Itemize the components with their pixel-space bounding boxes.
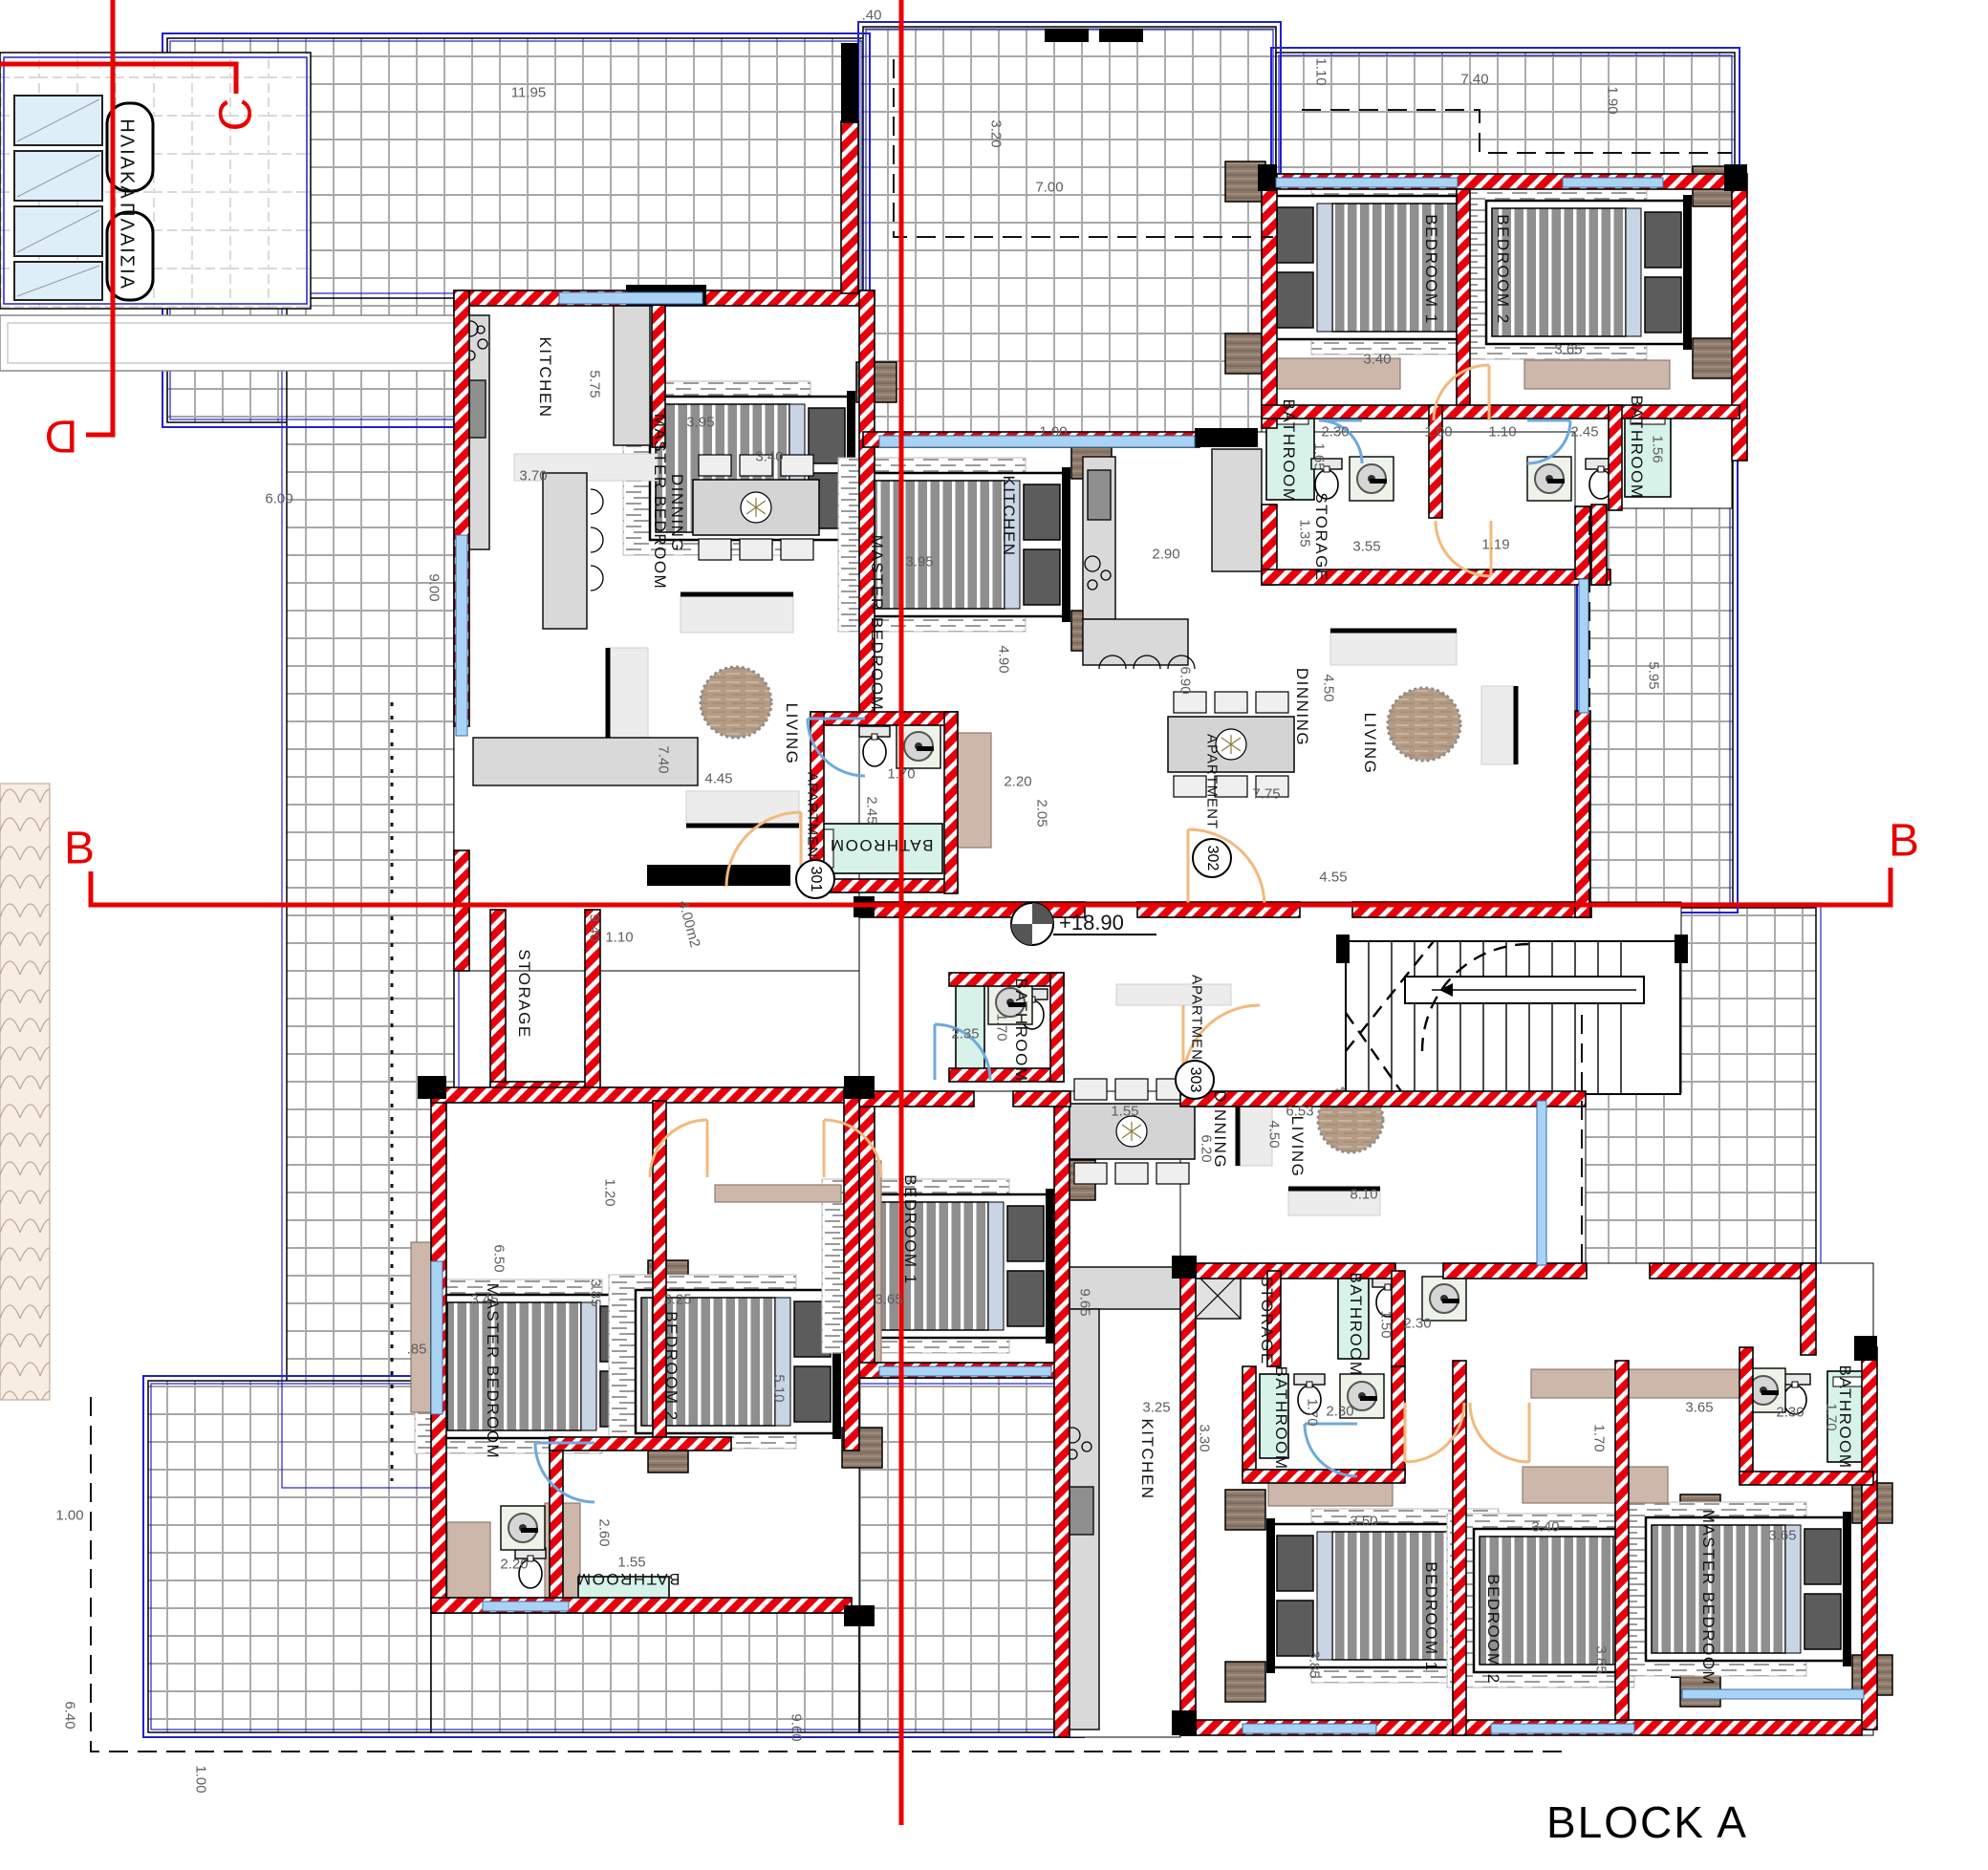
floor-plan: BLOCK A +18.90 ΗΛΙΑΚΑ ΠΛΑΙΣΙΑ KITCHENDIN…	[0, 0, 1988, 1870]
staircase	[1346, 941, 1680, 1094]
round-rug-301	[701, 667, 771, 738]
dining-table-302	[1168, 692, 1294, 797]
floor-plan-drawing	[0, 0, 1988, 1870]
dining-table-303	[1069, 1079, 1195, 1184]
neighbour-roof-tiles	[0, 784, 50, 1400]
round-rug-302	[1388, 688, 1460, 761]
dining-table-301	[693, 455, 819, 560]
